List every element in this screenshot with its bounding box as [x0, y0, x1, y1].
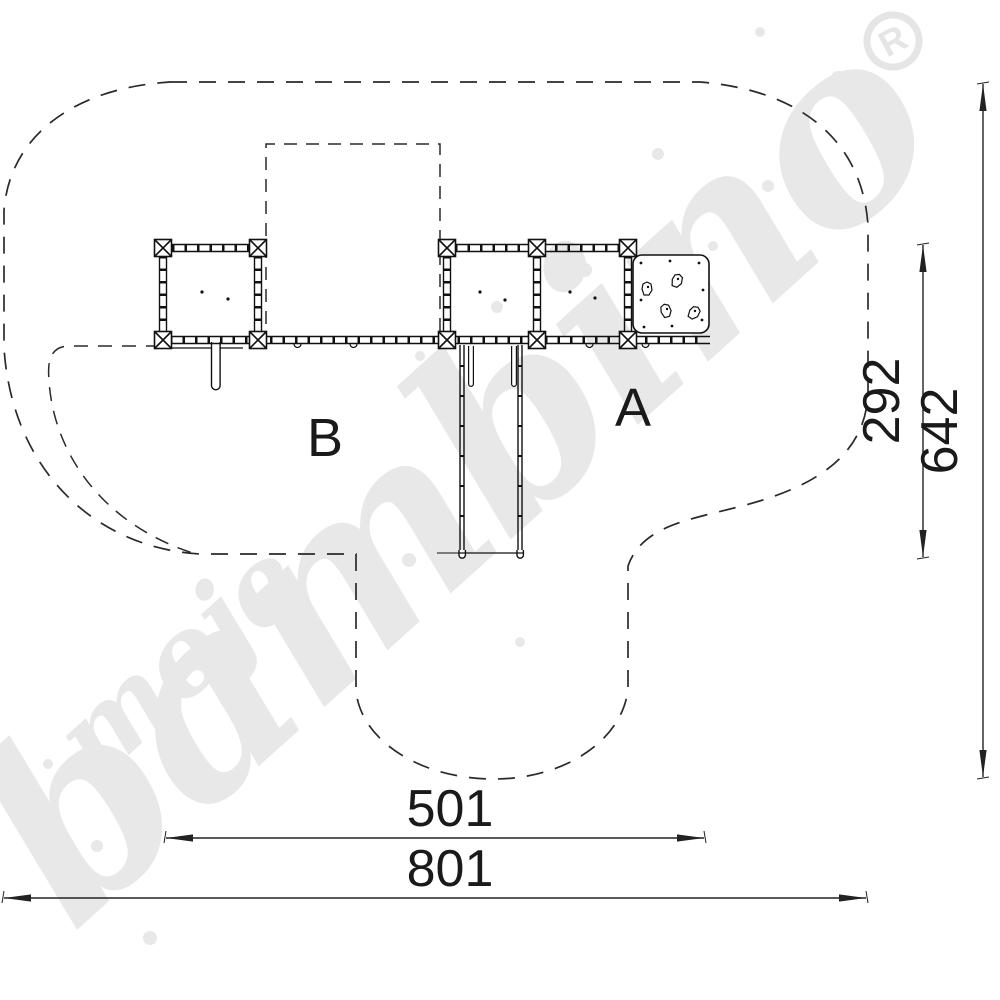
post — [620, 332, 637, 349]
zone-b-inner-outline — [49, 346, 196, 554]
dimension-label-292: 292 — [853, 358, 911, 445]
post — [155, 240, 172, 257]
post — [529, 240, 546, 257]
zone-label-b: B — [307, 408, 343, 468]
dimension-label-801: 801 — [407, 840, 494, 898]
post — [439, 240, 456, 257]
slide-rail-end-left — [459, 550, 465, 558]
post — [439, 332, 456, 349]
technical-drawing-page: bambino moje R — [0, 0, 1000, 1000]
slide-rail-end-right — [517, 550, 523, 558]
slide-guard-right — [512, 346, 517, 386]
climbing-panel — [633, 255, 709, 333]
slide-guard-left — [469, 346, 474, 386]
post — [529, 332, 546, 349]
dimension-label-501: 501 — [407, 780, 494, 838]
zone-label-a: A — [615, 378, 651, 438]
post — [155, 332, 172, 349]
post — [250, 332, 267, 349]
watermark: bambino moje R — [0, 0, 987, 978]
dimension-label-642: 642 — [911, 388, 969, 475]
playground-plan-drawing: bambino moje R — [0, 0, 1000, 1000]
fireman-pole — [212, 342, 221, 390]
post — [250, 240, 267, 257]
watermark-word-large: bambino — [0, 0, 987, 978]
post — [620, 240, 637, 257]
